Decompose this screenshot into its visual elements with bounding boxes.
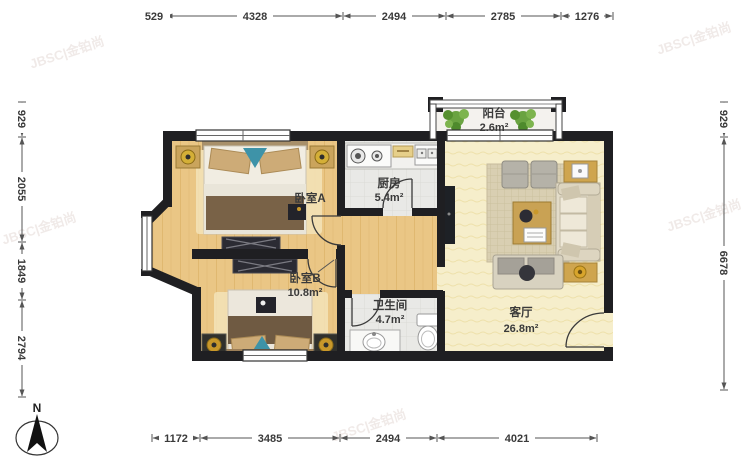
dim-label: 6678 [717,251,729,275]
dim-label: 929 [15,110,27,128]
living-label: 客厅 [509,305,533,319]
window [243,350,307,361]
dim-label: 2055 [15,177,27,201]
dim-label: 2794 [15,336,27,361]
cutting-board [393,146,413,157]
balcony-label: 阳台 [483,106,506,120]
kitchen-label: 厨房 [378,176,401,190]
dim-label: 2494 [382,11,407,23]
dim-label: 3485 [258,433,282,445]
sink [415,145,439,165]
window [142,216,152,271]
floor-plan-page: JBSC|金铂尚 JBSC|金铂尚 JBSC|金铂尚 JBSC|金铂尚 JBSC… [0,0,746,460]
dim-label: 1172 [164,433,188,445]
loveseat [493,255,563,289]
kitchen-area: 5.4m² [375,192,404,204]
ottoman [502,161,528,188]
dim-label: 4328 [243,11,267,23]
bedroom-b-label: 卧室B [289,271,320,285]
storage-bench [222,237,280,250]
lamp-center [324,343,329,348]
ottoman [531,161,557,188]
window [196,130,290,141]
dim-label: 529 [145,11,163,23]
dim-label: 1276 [575,11,599,23]
lamp-center [212,343,217,348]
coffee-table [513,202,551,244]
dim-label: 929 [717,110,729,128]
dim-label: 2494 [376,433,401,445]
double-bed-b [226,290,314,357]
bathroom-label: 卫生间 [373,298,408,312]
double-bed-a [202,140,308,234]
floor-plan-svg: 卧室A 厨房 5.4m² 阳台 2.6m² 卧室B 10.8m² 卫生间 4.7… [0,0,746,460]
living-area: 26.8m² [504,323,539,335]
side-table-gold [564,263,597,282]
storage-bench [233,259,297,273]
lamp-center [320,155,325,160]
compass: N [16,401,58,455]
kitchen-fixtures [345,143,440,169]
sofa-main [556,183,600,261]
dim-label: 2785 [491,11,515,23]
dim-label: 4021 [505,433,529,445]
bathroom-area: 4.7m² [376,314,405,326]
lamp-center [186,155,191,160]
bedroom-b-area: 10.8m² [288,287,323,299]
balcony-area: 2.6m² [480,122,509,134]
tv-dot [448,213,451,216]
compass-north-label: N [33,401,42,415]
stove [347,145,391,167]
side-table-lamp [564,161,597,182]
compass-needle-icon [27,414,47,452]
toilet [417,314,439,350]
dim-label: 1849 [15,259,27,283]
bedroom-a-label: 卧室A [294,191,325,205]
